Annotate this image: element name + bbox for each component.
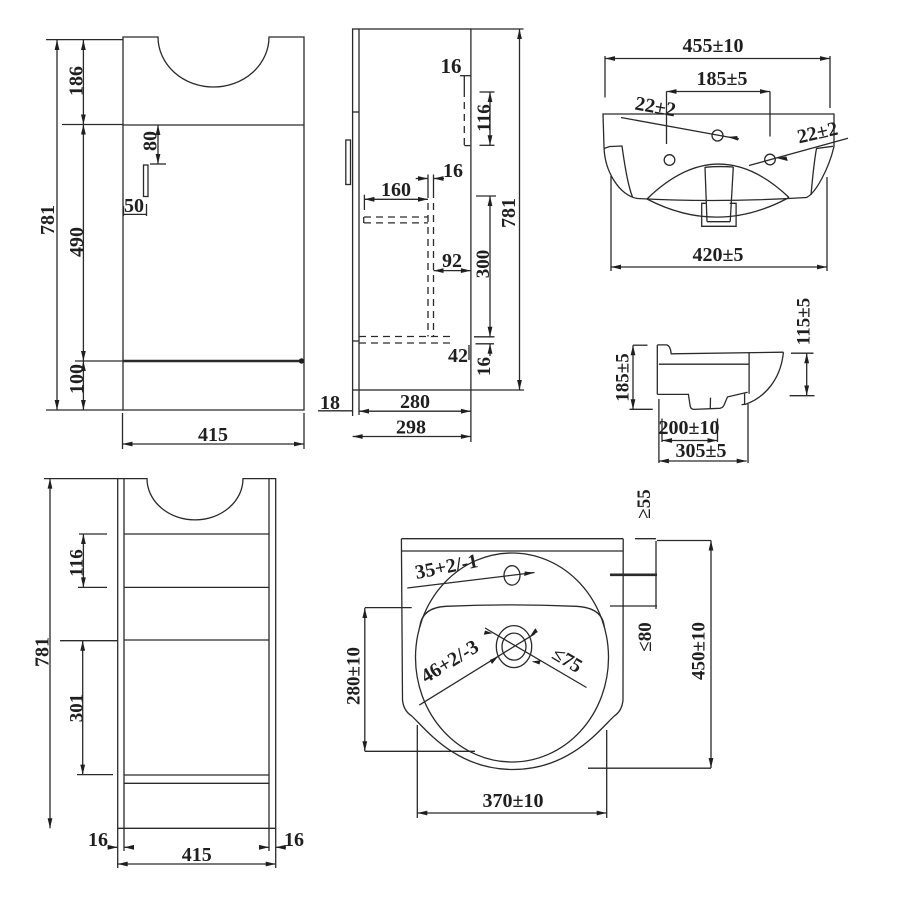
svg-text:781: 781 bbox=[37, 205, 59, 235]
svg-text:≤80: ≤80 bbox=[635, 622, 656, 651]
svg-text:200±10: 200±10 bbox=[659, 417, 720, 439]
svg-text:415: 415 bbox=[198, 424, 228, 446]
svg-text:16: 16 bbox=[441, 54, 462, 78]
svg-text:280±10: 280±10 bbox=[344, 647, 365, 705]
svg-text:115±5: 115±5 bbox=[794, 298, 815, 345]
svg-text:420±5: 420±5 bbox=[693, 244, 744, 266]
svg-text:186: 186 bbox=[66, 66, 88, 96]
svg-text:185±5: 185±5 bbox=[613, 353, 634, 401]
svg-text:415: 415 bbox=[182, 844, 212, 866]
svg-text:450±10: 450±10 bbox=[689, 622, 710, 680]
svg-text:455±10: 455±10 bbox=[683, 35, 744, 57]
svg-text:301: 301 bbox=[67, 694, 88, 723]
svg-text:46+2/-3: 46+2/-3 bbox=[417, 636, 483, 688]
svg-text:300: 300 bbox=[473, 250, 494, 279]
svg-text:116: 116 bbox=[67, 549, 88, 576]
svg-text:160: 160 bbox=[381, 179, 411, 201]
svg-text:42: 42 bbox=[448, 345, 468, 367]
svg-text:80: 80 bbox=[140, 131, 162, 151]
svg-text:50: 50 bbox=[124, 195, 144, 217]
svg-text:≤75: ≤75 bbox=[548, 643, 586, 678]
svg-text:16: 16 bbox=[284, 829, 304, 851]
svg-text:280: 280 bbox=[400, 391, 430, 413]
svg-text:781: 781 bbox=[32, 637, 54, 667]
svg-text:22±2: 22±2 bbox=[633, 93, 677, 122]
svg-text:92: 92 bbox=[442, 250, 462, 272]
svg-text:116: 116 bbox=[474, 104, 495, 131]
svg-text:16: 16 bbox=[474, 357, 495, 376]
svg-text:781: 781 bbox=[498, 198, 520, 228]
svg-text:16: 16 bbox=[88, 829, 108, 851]
svg-text:305±5: 305±5 bbox=[676, 440, 727, 462]
svg-text:490: 490 bbox=[66, 227, 88, 257]
svg-text:35+2/-1: 35+2/-1 bbox=[413, 550, 480, 584]
svg-text:100: 100 bbox=[66, 364, 88, 394]
svg-text:≥55: ≥55 bbox=[634, 489, 655, 518]
svg-text:370±10: 370±10 bbox=[483, 790, 544, 812]
svg-text:185±5: 185±5 bbox=[697, 68, 748, 90]
svg-text:16: 16 bbox=[443, 160, 463, 182]
svg-text:22±2: 22±2 bbox=[795, 118, 840, 149]
svg-text:298: 298 bbox=[396, 417, 426, 439]
